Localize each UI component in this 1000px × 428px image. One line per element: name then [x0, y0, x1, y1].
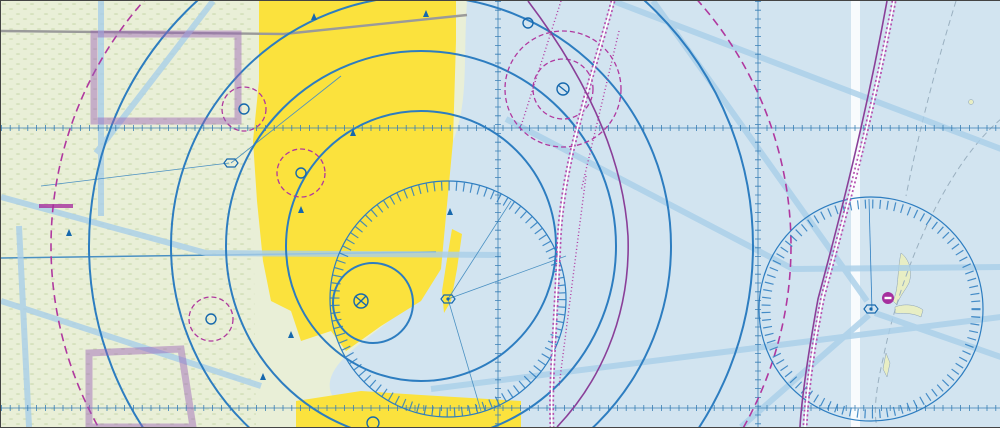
- map-labels-layer: [1, 1, 1000, 427]
- vfr-sectional-chart: [0, 0, 1000, 428]
